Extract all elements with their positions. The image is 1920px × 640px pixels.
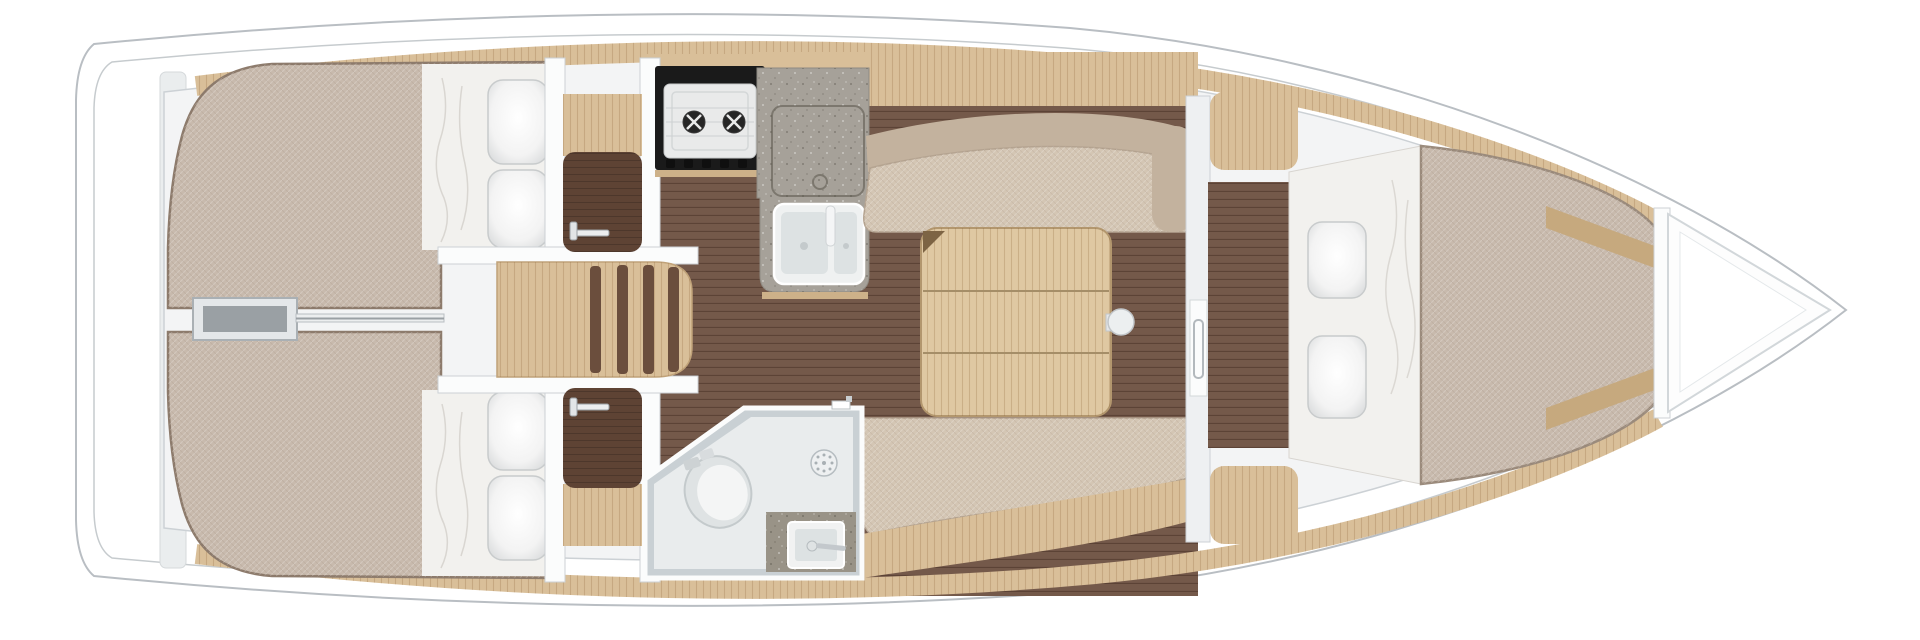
entry-port-handle-stem [570,222,577,240]
step-gap-4 [668,267,679,372]
vberth-pillow-bottom [1308,336,1366,418]
sink-basin-right [834,212,857,274]
bath-sink-drain [807,541,817,551]
wall-port-head [545,58,565,256]
step-gap-2 [617,265,628,374]
step-gap-3 [643,265,654,374]
wall-starboard-head [545,384,565,582]
pillow-starboard-inboard [488,392,548,470]
galley-sink [774,204,864,284]
entry-starboard-handle-stem [570,398,577,416]
fwd-cabinet-bottom-grain [1210,466,1298,544]
aft-entry-starboard [563,388,642,546]
counter-base-edge [762,292,868,299]
settee-top [864,113,1194,232]
stern-locker-inner [203,306,287,332]
settee-top-cushion-weave [864,146,1194,232]
pillow-port-outboard [488,80,548,164]
centerline-rod [296,318,444,320]
boat-floor-plan [0,0,1920,640]
stove-burner-right [723,111,745,133]
sink-faucet [826,206,835,246]
stove-front-edge [655,170,765,177]
settee-top-wall-grain [866,52,1198,106]
vberth-pillow-top [1308,222,1366,298]
stove [655,66,765,177]
table-knob [1108,309,1134,335]
entry-starboard-cabinet-grain [563,484,642,546]
head-door-latch [832,401,850,409]
head-door-latch-pin [846,396,852,402]
entry-starboard-handle-bar [573,404,609,410]
step-gap-1 [590,266,601,373]
floor-plan-canvas [0,0,1920,640]
aft-entry-port [563,94,642,252]
entry-port-cabinet-grain [563,94,642,156]
entry-port-handle-bar [573,230,609,236]
vberth-platform [1289,146,1421,484]
shower-drain [811,450,837,476]
companionway-steps [497,262,692,377]
fwd-cabin-door [1190,300,1207,396]
table-top-grain [921,228,1111,416]
fwd-cabinet-top-grain [1210,92,1298,170]
sink-drain-left [800,242,808,250]
sink-drain-right [843,243,849,249]
salon-table [921,228,1134,416]
fwd-entry-floor-planks [1208,182,1290,448]
forward-cabin [1208,146,1660,484]
stove-burner-left [683,111,705,133]
bathroom-sink [766,512,856,572]
pillow-port-inboard [488,170,548,248]
pillow-starboard-outboard [488,476,548,560]
